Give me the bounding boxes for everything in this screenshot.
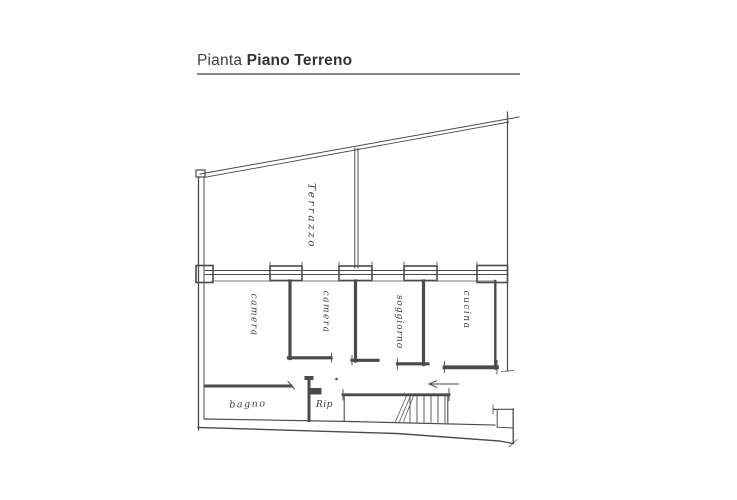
title-emphasis: Piano Terreno — [247, 52, 353, 69]
pier-ticks — [270, 262, 477, 268]
wall-pier — [404, 266, 437, 281]
room-label-cucina: cucina — [461, 291, 471, 330]
stair-break-hatch — [396, 396, 414, 422]
room-label-camera-1: camera — [249, 294, 259, 337]
stair-treads — [410, 396, 445, 422]
room-label-soggiorno: soggiorno — [394, 295, 404, 349]
direction-arrow-icon — [429, 381, 459, 387]
room-label-bagno: bagno — [229, 398, 267, 410]
title-underline — [197, 73, 520, 75]
service-walls — [205, 376, 338, 421]
wall-pier — [477, 266, 508, 283]
screenshot-root: Pianta Piano Terreno — [0, 0, 737, 500]
windows-row — [196, 262, 508, 283]
room-label-terrazzo: Terrazzo — [306, 183, 318, 249]
title-prefix: Pianta — [197, 52, 242, 69]
right-wall-end-tick — [502, 371, 514, 372]
bottom-walls — [198, 405, 517, 447]
wall-pier — [339, 266, 372, 281]
parapet-top-inner — [204, 122, 509, 178]
wall-pier — [270, 266, 302, 281]
rip-wall-cap — [305, 376, 314, 380]
page-title: Pianta Piano Terreno — [197, 52, 352, 70]
floor-plan-drawing: Terrazzo camera camera soggiorno cucina … — [190, 95, 535, 470]
pencil-dot — [335, 378, 338, 381]
room-label-camera-2: camera — [321, 291, 331, 334]
staircase — [343, 389, 449, 423]
rip-wall-stub — [311, 388, 322, 395]
parapet-top-outer — [200, 117, 519, 174]
room-label-rip: Rip — [315, 400, 333, 410]
